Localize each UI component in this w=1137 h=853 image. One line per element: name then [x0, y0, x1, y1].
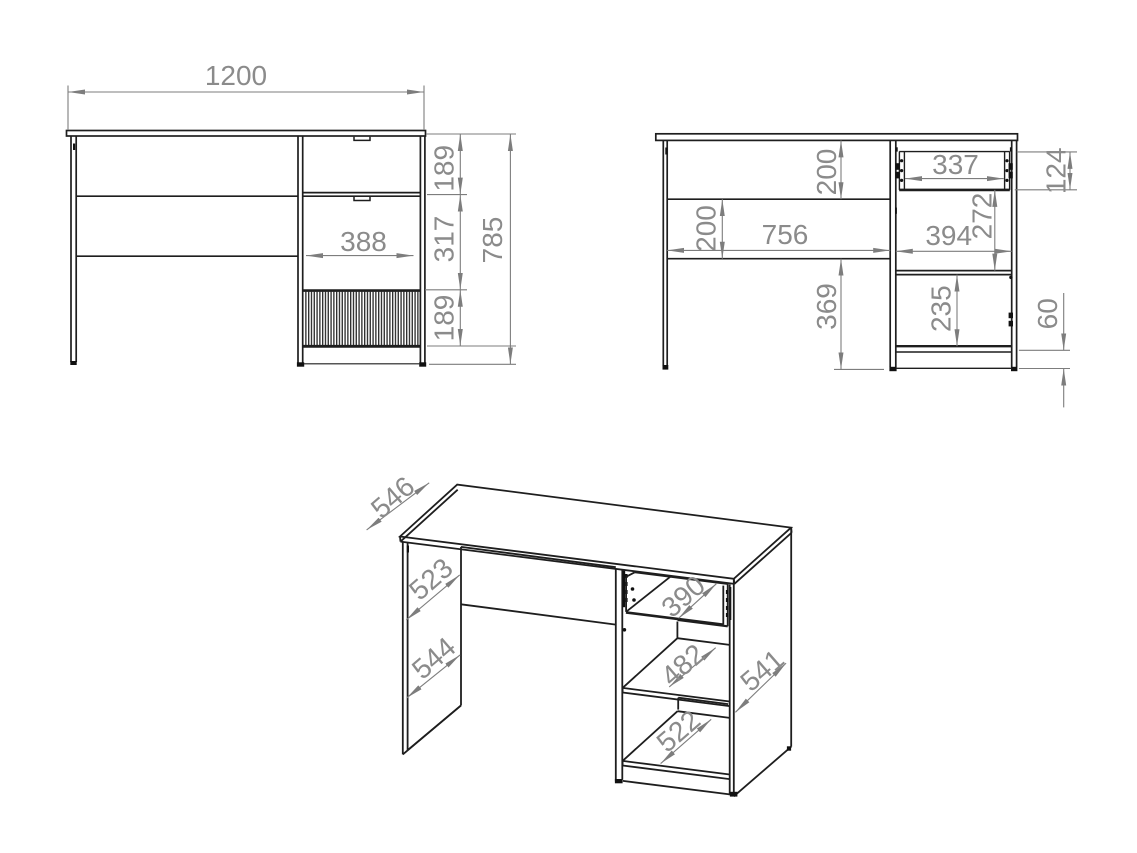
svg-text:369: 369	[811, 283, 842, 330]
svg-text:235: 235	[926, 285, 957, 332]
svg-text:124: 124	[1041, 147, 1072, 194]
svg-text:785: 785	[477, 217, 508, 264]
svg-text:60: 60	[1032, 298, 1063, 329]
svg-text:200: 200	[691, 205, 722, 252]
svg-text:189: 189	[429, 295, 460, 342]
svg-text:337: 337	[932, 149, 979, 180]
svg-text:317: 317	[429, 216, 460, 263]
svg-text:388: 388	[340, 226, 387, 257]
svg-text:394: 394	[925, 220, 972, 251]
svg-text:200: 200	[811, 149, 842, 196]
svg-text:756: 756	[762, 219, 809, 250]
svg-text:1200: 1200	[205, 60, 267, 91]
svg-text:189: 189	[429, 145, 460, 192]
